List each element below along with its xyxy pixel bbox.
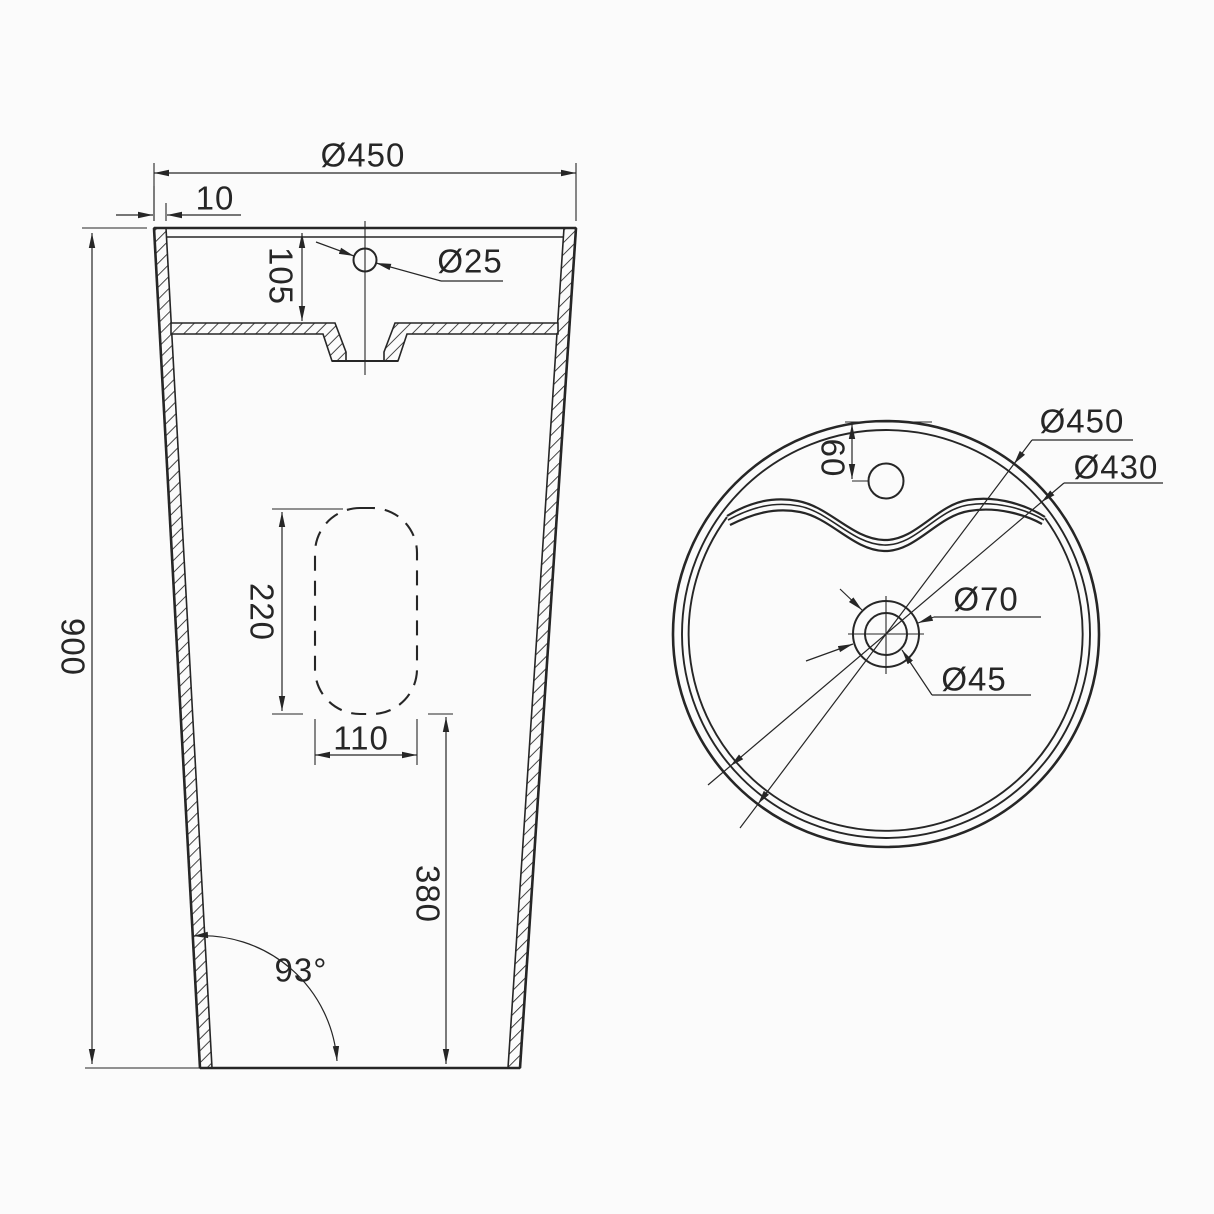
dim-rim-thickness-label: 10 (196, 182, 235, 215)
dim-drain-outer-label: Ø70 (953, 583, 1018, 616)
dim-faucet-offset-label: 60 (817, 439, 850, 478)
dim-drain-hole-label: Ø45 (941, 663, 1006, 696)
dim-slot-width-label: 110 (333, 722, 389, 755)
technical-drawing-sheet: Ø450 10 105 Ø25 900 220 110 380 93° 60 Ø… (0, 0, 1214, 1214)
dim-faucet-hole-label: Ø25 (437, 245, 502, 278)
dim-base-angle-label: 93° (275, 954, 328, 987)
mounting-slot (315, 508, 417, 714)
basin-floor-right (384, 323, 558, 361)
right-wall-hatch (508, 228, 576, 1068)
dim-inner-diameter-label: Ø430 (1074, 451, 1159, 484)
left-wall-hatch (154, 228, 212, 1068)
dim-slot-height-label: 220 (246, 583, 279, 641)
front-view (82, 163, 576, 1068)
basin-drawing-linework (0, 0, 1214, 1214)
dim-basin-depth-label: 105 (265, 247, 298, 305)
dim-drain-height-label: 380 (412, 865, 445, 923)
dim-overall-width-label: Ø450 (321, 139, 406, 172)
faucet-hole-top (869, 464, 904, 499)
dim-outer-diameter-label: Ø450 (1040, 405, 1125, 438)
basin-floor-left (171, 323, 346, 361)
dim-overall-height-label: 900 (57, 618, 90, 676)
